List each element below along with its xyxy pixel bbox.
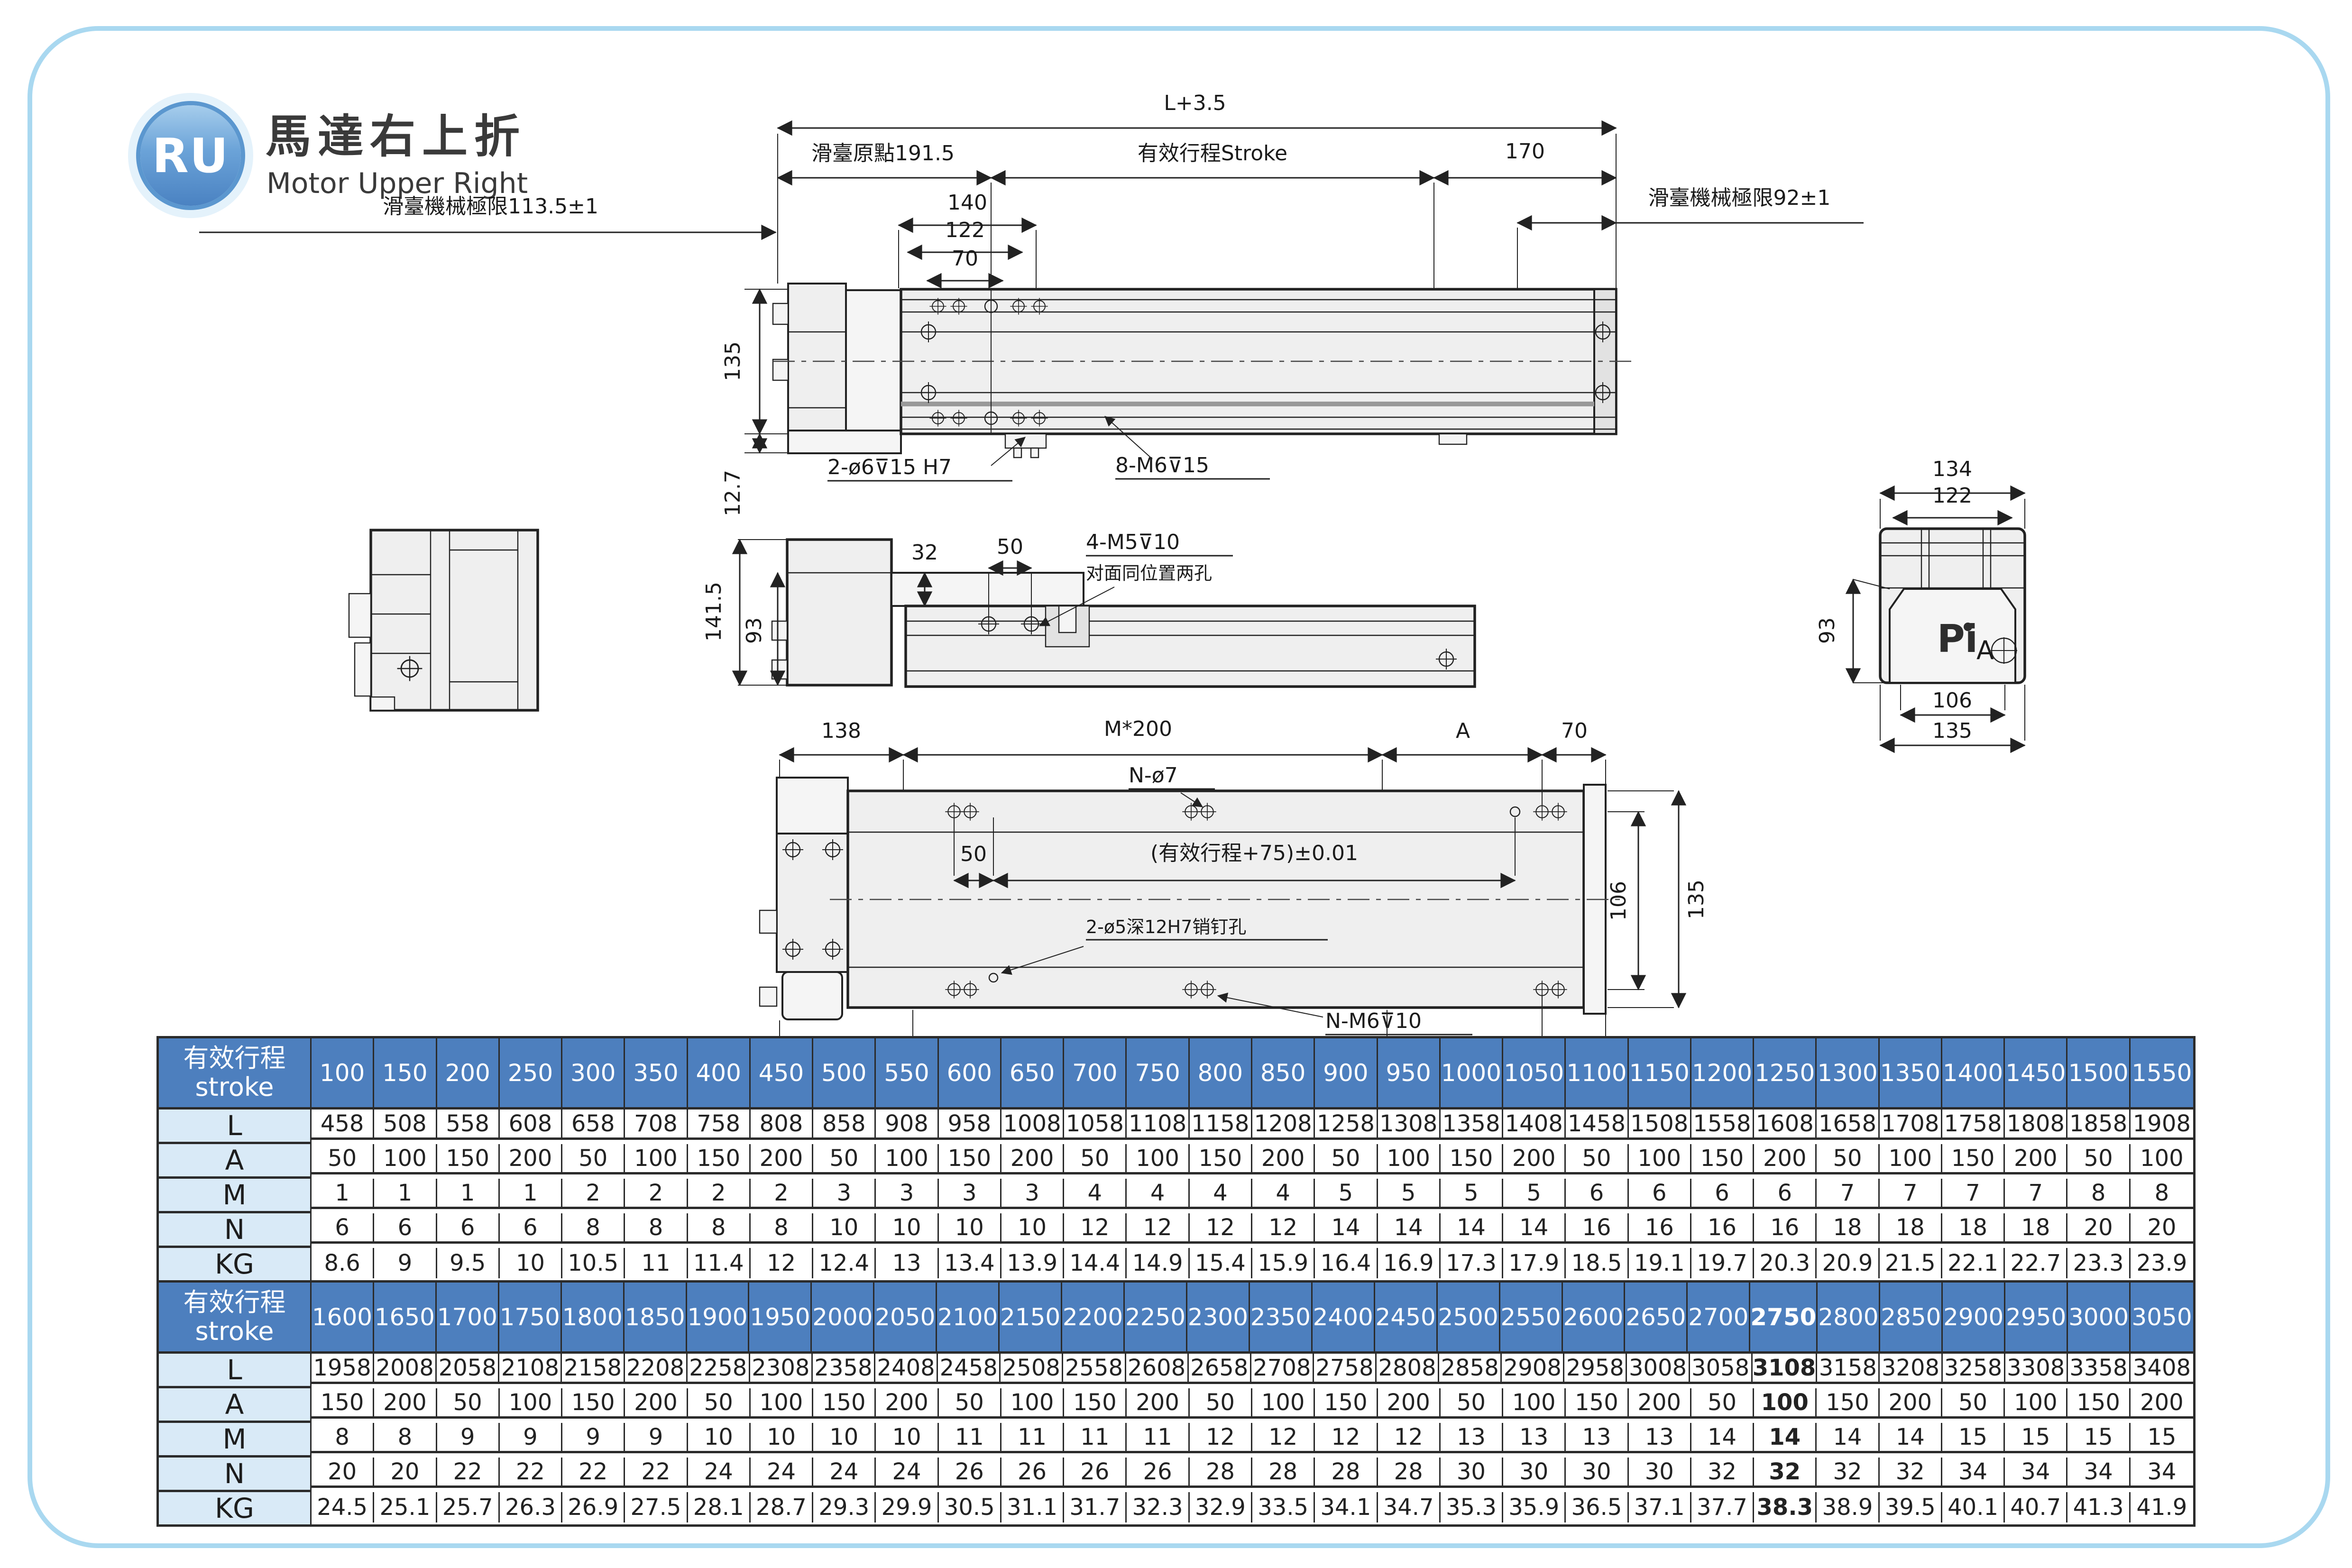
- value-cell: 29.9: [876, 1492, 938, 1522]
- value-cell: 11: [1001, 1423, 1064, 1453]
- value-cell: 1608: [1754, 1110, 1817, 1140]
- value-cell: 6: [1629, 1179, 1691, 1209]
- value-cell: 2208: [625, 1354, 688, 1384]
- stroke-column-header: 2950: [2005, 1283, 2068, 1354]
- value-cell: 7: [2005, 1179, 2067, 1209]
- value-cell: 958: [939, 1110, 1001, 1140]
- value-cell: 29.3: [813, 1492, 876, 1522]
- value-cell: 24: [813, 1458, 876, 1488]
- stroke-column-header: 2800: [1818, 1283, 1880, 1354]
- value-cell: 2508: [1001, 1354, 1063, 1384]
- value-cell: 50: [688, 1388, 751, 1419]
- value-cell: 50: [813, 1144, 876, 1174]
- stroke-column-header: 600: [939, 1038, 1001, 1110]
- value-cell: 17.9: [1503, 1248, 1566, 1278]
- value-cell: 23.3: [2067, 1248, 2130, 1278]
- value-cell: 50: [2067, 1144, 2130, 1174]
- value-cell: 35.3: [1441, 1492, 1503, 1522]
- value-cell: 2408: [875, 1354, 938, 1384]
- value-cell: 14: [1378, 1213, 1441, 1244]
- value-cell: 3058: [1690, 1354, 1753, 1384]
- dim-135-right: 135: [1932, 719, 1972, 743]
- value-cell: 2908: [1502, 1354, 1564, 1384]
- value-cell: 34: [2005, 1458, 2067, 1488]
- value-cell: 14: [1691, 1423, 1754, 1453]
- row-label-m: M: [159, 1423, 312, 1458]
- section-view-drawing: 141.5 93 32 50 4-M5⊽10 对面同位置两孔: [702, 530, 1475, 687]
- value-cell: 1808: [2005, 1110, 2067, 1140]
- stroke-column-header: 2700: [1688, 1283, 1750, 1354]
- value-cell: 14: [1754, 1423, 1817, 1453]
- value-cell: 150: [688, 1144, 751, 1174]
- value-cell: 458: [312, 1110, 374, 1140]
- value-cell: 3108: [1753, 1354, 1818, 1384]
- value-cell: 13.4: [939, 1248, 1001, 1278]
- stroke-column-header: 650: [1001, 1038, 1064, 1110]
- value-cell: 1108: [1127, 1110, 1189, 1140]
- dim-a-top: A: [1456, 719, 1470, 743]
- value-cell: 100: [500, 1388, 562, 1419]
- value-cell: 200: [1378, 1388, 1441, 1419]
- value-cell: 6: [1691, 1179, 1754, 1209]
- dim-32: 32: [911, 541, 938, 565]
- value-cell: 1008: [1001, 1110, 1064, 1140]
- dim-140: 140: [947, 191, 987, 215]
- dim-pitch-top: M*200: [1104, 717, 1172, 741]
- row-label-kg: KG: [159, 1248, 312, 1280]
- value-cell: 10: [500, 1248, 562, 1278]
- value-cell: 26: [1064, 1458, 1127, 1488]
- stroke-column-header: 2050: [874, 1283, 937, 1354]
- value-cell: 23.9: [2131, 1248, 2193, 1278]
- value-cell: 9: [374, 1248, 437, 1278]
- value-cell: 6: [374, 1213, 437, 1244]
- value-cell: 100: [1880, 1144, 1942, 1174]
- value-cell: 2658: [1189, 1354, 1251, 1384]
- value-cell: 16: [1754, 1213, 1817, 1244]
- value-cell: 33.5: [1252, 1492, 1315, 1522]
- top-view-drawing: L+3.5 滑臺原點191.5 有效行程Stroke 170 140 122 7…: [199, 91, 1864, 516]
- value-cell: 12: [751, 1248, 813, 1278]
- value-cell: 8: [751, 1213, 813, 1244]
- stroke-column-header: 550: [876, 1038, 938, 1110]
- dim-141-5: 141.5: [702, 582, 726, 642]
- value-cell: 9: [562, 1423, 625, 1453]
- value-cell: 1308: [1378, 1110, 1441, 1140]
- stroke-column-header: 900: [1315, 1038, 1378, 1110]
- stroke-column-header: 2000: [812, 1283, 874, 1354]
- value-cell: 2958: [1564, 1354, 1627, 1384]
- value-cell: 1208: [1252, 1110, 1315, 1140]
- value-cell: 21.5: [1880, 1248, 1942, 1278]
- stroke-column-header: 1750: [499, 1283, 562, 1354]
- value-cell: 200: [1754, 1144, 1817, 1174]
- row-label-a: A: [159, 1388, 312, 1423]
- value-cell: 26: [1001, 1458, 1064, 1488]
- value-cell: 1908: [2131, 1110, 2193, 1140]
- dim-slide-origin: 滑臺原點191.5: [811, 141, 955, 165]
- value-cell: 11: [1127, 1423, 1189, 1453]
- value-cell: 22: [437, 1458, 500, 1488]
- value-cell: 200: [751, 1144, 813, 1174]
- value-cell: 200: [1127, 1388, 1189, 1419]
- value-cell: 150: [1566, 1388, 1628, 1419]
- value-cell: 31.7: [1064, 1492, 1127, 1522]
- dim-70: 70: [952, 247, 978, 271]
- value-cell: 13: [1441, 1423, 1503, 1453]
- stroke-column-header: 1900: [687, 1283, 750, 1354]
- value-cell: 150: [437, 1144, 500, 1174]
- value-cell: 100: [1503, 1388, 1566, 1419]
- value-cell: 10: [876, 1423, 938, 1453]
- stroke-column-header: 1050: [1503, 1038, 1566, 1110]
- stroke-column-header: 1650: [374, 1283, 437, 1354]
- value-cell: 8: [2067, 1179, 2130, 1209]
- right-end-view-drawing: Pi A 134 122 93 106 135: [1815, 457, 2025, 745]
- value-cell: 200: [876, 1388, 938, 1419]
- value-cell: 14: [1441, 1213, 1503, 1244]
- value-cell: 32: [1817, 1458, 1879, 1488]
- value-cell: 150: [1441, 1144, 1503, 1174]
- value-cell: 100: [2131, 1144, 2193, 1174]
- value-cell: 10: [813, 1213, 876, 1244]
- value-cell: 18: [1817, 1213, 1879, 1244]
- stroke-column-header: 750: [1127, 1038, 1189, 1110]
- value-cell: 1658: [1817, 1110, 1879, 1140]
- value-cell: 1258: [1315, 1110, 1378, 1140]
- dim-93-section: 93: [742, 617, 766, 644]
- value-cell: 35.9: [1503, 1492, 1566, 1522]
- value-cell: 20.3: [1754, 1248, 1817, 1278]
- value-cell: 12: [1190, 1213, 1252, 1244]
- value-cell: 150: [1691, 1144, 1754, 1174]
- value-cell: 100: [1378, 1144, 1441, 1174]
- value-cell: 13: [1566, 1423, 1628, 1453]
- value-cell: 3308: [2005, 1354, 2068, 1384]
- value-cell: 3158: [1817, 1354, 1880, 1384]
- value-cell: 2558: [1063, 1354, 1126, 1384]
- value-cell: 25.7: [437, 1492, 500, 1522]
- value-cell: 2808: [1377, 1354, 1439, 1384]
- row-label-a: A: [159, 1144, 312, 1179]
- value-cell: 27.5: [625, 1492, 688, 1522]
- value-cell: 16.9: [1378, 1248, 1441, 1278]
- value-cell: 20.9: [1817, 1248, 1879, 1278]
- label-n-m6: N-M6⊽10: [1325, 1009, 1422, 1033]
- value-cell: 11.4: [688, 1248, 751, 1278]
- value-cell: 1: [374, 1179, 437, 1209]
- stroke-column-header: 700: [1064, 1038, 1127, 1110]
- value-cell: 30.5: [939, 1492, 1001, 1522]
- value-cell: 8.6: [312, 1248, 374, 1278]
- value-cell: 1508: [1629, 1110, 1691, 1140]
- value-cell: 18.5: [1566, 1248, 1628, 1278]
- value-cell: 6: [437, 1213, 500, 1244]
- dim-106-bottom: 106: [1607, 881, 1631, 921]
- value-cell: 3: [1001, 1179, 1064, 1209]
- value-cell: 38.3: [1754, 1492, 1817, 1522]
- value-cell: 24: [876, 1458, 938, 1488]
- value-cell: 1408: [1503, 1110, 1566, 1140]
- value-cell: 8: [312, 1423, 374, 1453]
- label-dowel-holes: 2-ø6⊽15 H7: [827, 455, 952, 479]
- value-cell: 6: [500, 1213, 562, 1244]
- stroke-column-header: 200: [437, 1038, 500, 1110]
- value-cell: 1: [437, 1179, 500, 1209]
- value-cell: 26: [939, 1458, 1001, 1488]
- value-cell: 150: [1190, 1144, 1252, 1174]
- value-cell: 34.7: [1378, 1492, 1441, 1522]
- value-cell: 22: [625, 1458, 688, 1488]
- value-cell: 10.5: [562, 1248, 625, 1278]
- left-end-view-drawing: [349, 530, 538, 710]
- value-cell: 28: [1315, 1458, 1378, 1488]
- stroke-column-header: 2450: [1375, 1283, 1438, 1354]
- value-cell: 16: [1566, 1213, 1628, 1244]
- value-cell: 50: [1064, 1144, 1127, 1174]
- value-cell: 100: [876, 1144, 938, 1174]
- stroke-column-header: 1800: [562, 1283, 625, 1354]
- value-cell: 150: [2067, 1388, 2130, 1419]
- value-cell: 1558: [1691, 1110, 1754, 1140]
- stroke-column-header: 500: [813, 1038, 876, 1110]
- value-cell: 16: [1691, 1213, 1754, 1244]
- dim-12-7: 12.7: [721, 470, 745, 516]
- value-cell: 9: [437, 1423, 500, 1453]
- dim-122-right: 122: [1932, 484, 1972, 508]
- value-cell: 50: [1817, 1144, 1879, 1174]
- value-cell: 200: [1629, 1388, 1691, 1419]
- value-cell: 14: [1315, 1213, 1378, 1244]
- value-cell: 22: [562, 1458, 625, 1488]
- value-cell: 2: [688, 1179, 751, 1209]
- value-cell: 808: [751, 1110, 813, 1140]
- value-cell: 9: [625, 1423, 688, 1453]
- value-cell: 150: [312, 1388, 374, 1419]
- stroke-column-header: 950: [1378, 1038, 1441, 1110]
- value-cell: 6: [312, 1213, 374, 1244]
- value-cell: 10: [813, 1423, 876, 1453]
- value-cell: 9: [500, 1423, 562, 1453]
- value-cell: 100: [2005, 1388, 2067, 1419]
- value-cell: 2258: [688, 1354, 750, 1384]
- value-cell: 3408: [2131, 1354, 2193, 1384]
- value-cell: 7: [1880, 1179, 1942, 1209]
- stroke-column-header: 1550: [2131, 1038, 2193, 1110]
- value-cell: 16.4: [1315, 1248, 1378, 1278]
- value-cell: 24: [688, 1458, 751, 1488]
- stroke-column-header: 2500: [1438, 1283, 1500, 1354]
- value-cell: 10: [751, 1423, 813, 1453]
- value-cell: 1: [500, 1179, 562, 1209]
- value-cell: 15: [2005, 1423, 2067, 1453]
- value-cell: 4: [1190, 1179, 1252, 1209]
- value-cell: 1058: [1064, 1110, 1127, 1140]
- stroke-column-header: 1300: [1817, 1038, 1879, 1110]
- value-cell: 38.9: [1817, 1492, 1879, 1522]
- value-cell: 28.7: [751, 1492, 813, 1522]
- value-cell: 34.1: [1315, 1492, 1378, 1522]
- value-cell: 11: [1064, 1423, 1127, 1453]
- value-cell: 6: [1566, 1179, 1628, 1209]
- value-cell: 1958: [312, 1354, 374, 1384]
- value-cell: 50: [1315, 1144, 1378, 1174]
- value-cell: 50: [1190, 1388, 1252, 1419]
- stroke-column-header: 1350: [1880, 1038, 1942, 1110]
- value-cell: 15.9: [1252, 1248, 1315, 1278]
- value-cell: 50: [312, 1144, 374, 1174]
- stroke-column-header: 800: [1190, 1038, 1252, 1110]
- value-cell: 100: [625, 1144, 688, 1174]
- stroke-column-header: 3000: [2068, 1283, 2131, 1354]
- value-cell: 36.5: [1566, 1492, 1628, 1522]
- value-cell: 34: [2131, 1458, 2193, 1488]
- value-cell: 24: [751, 1458, 813, 1488]
- stroke-column-header: 2900: [1943, 1283, 2005, 1354]
- value-cell: 2008: [374, 1354, 437, 1384]
- value-cell: 3: [939, 1179, 1001, 1209]
- value-cell: 14.4: [1064, 1248, 1127, 1278]
- value-cell: 200: [500, 1144, 562, 1174]
- value-cell: 100: [751, 1388, 813, 1419]
- stroke-column-header: 2400: [1313, 1283, 1375, 1354]
- stroke-column-header: 400: [688, 1038, 751, 1110]
- value-cell: 18: [1942, 1213, 2005, 1244]
- value-cell: 200: [1503, 1144, 1566, 1174]
- value-cell: 150: [1942, 1144, 2005, 1174]
- stroke-column-header: 1600: [312, 1283, 374, 1354]
- value-cell: 40.7: [2005, 1492, 2067, 1522]
- value-cell: 13.9: [1001, 1248, 1064, 1278]
- value-cell: 31.1: [1001, 1492, 1064, 1522]
- bottom-view-drawing: 138 M*200 A 70 N-ø7 50 (有效行程+75)±0.01 2-…: [760, 717, 1709, 1081]
- dim-70-bottom: 70: [1561, 719, 1588, 743]
- value-cell: 10: [1001, 1213, 1064, 1244]
- value-cell: 200: [374, 1388, 437, 1419]
- value-cell: 708: [625, 1110, 688, 1140]
- stroke-column-header: 1200: [1691, 1038, 1754, 1110]
- label-n-holes: N-ø7: [1129, 763, 1178, 788]
- dim-50-bottom: 50: [960, 842, 987, 866]
- value-cell: 14.9: [1127, 1248, 1189, 1278]
- value-cell: 20: [374, 1458, 437, 1488]
- stroke-column-header: 2600: [1563, 1283, 1626, 1354]
- value-cell: 50: [562, 1144, 625, 1174]
- value-cell: 100: [1127, 1144, 1189, 1174]
- value-cell: 18: [2005, 1213, 2067, 1244]
- value-cell: 26.3: [500, 1492, 562, 1522]
- value-cell: 5: [1441, 1179, 1503, 1209]
- value-cell: 34: [2067, 1458, 2130, 1488]
- value-cell: 26.9: [562, 1492, 625, 1522]
- value-cell: 10: [688, 1423, 751, 1453]
- stroke-column-header: 1150: [1629, 1038, 1691, 1110]
- value-cell: 12: [1378, 1423, 1441, 1453]
- value-cell: 100: [1629, 1144, 1691, 1174]
- dim-135-bottom: 135: [1684, 880, 1709, 919]
- value-cell: 16: [1629, 1213, 1691, 1244]
- stroke-header-cell: 有效行程stroke: [159, 1038, 312, 1110]
- stroke-column-header: 450: [751, 1038, 813, 1110]
- value-cell: 30: [1629, 1458, 1691, 1488]
- value-cell: 32.9: [1190, 1492, 1252, 1522]
- dim-135: 135: [721, 341, 745, 381]
- stroke-column-header: 1500: [2067, 1038, 2130, 1110]
- value-cell: 26: [1127, 1458, 1189, 1488]
- stroke-column-header: 3050: [2131, 1283, 2193, 1354]
- value-cell: 28: [1190, 1458, 1252, 1488]
- dim-total-length: L+3.5: [1164, 91, 1226, 115]
- value-cell: 3208: [1880, 1354, 1942, 1384]
- stroke-column-header: 1000: [1441, 1038, 1503, 1110]
- row-label-n: N: [159, 1458, 312, 1492]
- value-cell: 858: [813, 1110, 876, 1140]
- value-cell: 200: [1880, 1388, 1942, 1419]
- value-cell: 8: [688, 1213, 751, 1244]
- row-label-kg: KG: [159, 1492, 312, 1524]
- value-cell: 11: [625, 1248, 688, 1278]
- stroke-column-header: 1400: [1942, 1038, 2005, 1110]
- row-label-l: L: [159, 1110, 312, 1144]
- stroke-column-header: 1100: [1566, 1038, 1628, 1110]
- value-cell: 100: [374, 1144, 437, 1174]
- stroke-column-header: 2550: [1500, 1283, 1563, 1354]
- value-cell: 200: [625, 1388, 688, 1419]
- value-cell: 758: [688, 1110, 751, 1140]
- pi-logo: Pi: [1937, 617, 1978, 661]
- value-cell: 2708: [1251, 1354, 1314, 1384]
- stroke-column-header: 1950: [749, 1283, 812, 1354]
- stroke-table-2: 有效行程stroke160016501700175018001850190019…: [156, 1280, 2196, 1527]
- dim-134: 134: [1932, 457, 1972, 481]
- value-cell: 20: [312, 1458, 374, 1488]
- stroke-column-header: 250: [500, 1038, 562, 1110]
- value-cell: 50: [1942, 1388, 2005, 1419]
- value-cell: 2358: [813, 1354, 875, 1384]
- value-cell: 1158: [1190, 1110, 1252, 1140]
- value-cell: 150: [939, 1144, 1001, 1174]
- row-label-m: M: [159, 1179, 312, 1213]
- stroke-column-header: 1700: [437, 1283, 499, 1354]
- stroke-column-header: 2200: [1062, 1283, 1125, 1354]
- stroke-column-header: 2100: [937, 1283, 1000, 1354]
- value-cell: 3358: [2068, 1354, 2131, 1384]
- value-cell: 2458: [938, 1354, 1001, 1384]
- value-cell: 8: [562, 1213, 625, 1244]
- dim-122: 122: [945, 218, 985, 242]
- value-cell: 12: [1252, 1213, 1315, 1244]
- stroke-column-header: 2750: [1750, 1283, 1818, 1354]
- value-cell: 32: [1754, 1458, 1817, 1488]
- value-cell: 10: [876, 1213, 938, 1244]
- dim-50-section: 50: [997, 535, 1023, 559]
- value-cell: 508: [374, 1110, 437, 1140]
- value-cell: 32.3: [1127, 1492, 1189, 1522]
- value-cell: 1758: [1942, 1110, 2005, 1140]
- value-cell: 200: [2131, 1388, 2193, 1419]
- stroke-column-header: 2250: [1125, 1283, 1187, 1354]
- value-cell: 20: [2131, 1213, 2193, 1244]
- value-cell: 30: [1441, 1458, 1503, 1488]
- value-cell: 17.3: [1441, 1248, 1503, 1278]
- value-cell: 4: [1252, 1179, 1315, 1209]
- label-pin-holes: 2-ø5深12H7销钉孔: [1086, 917, 1246, 937]
- value-cell: 50: [1441, 1388, 1503, 1419]
- value-cell: 25.1: [374, 1492, 437, 1522]
- value-cell: 30: [1503, 1458, 1566, 1488]
- value-cell: 10: [939, 1213, 1001, 1244]
- value-cell: 39.5: [1880, 1492, 1942, 1522]
